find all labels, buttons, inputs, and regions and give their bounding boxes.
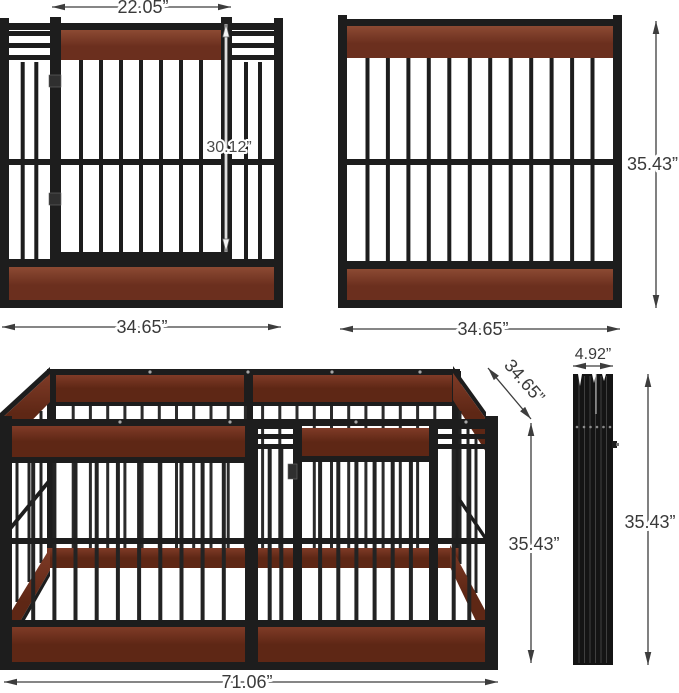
door-bars <box>79 60 203 252</box>
arrowhead <box>653 295 660 308</box>
folded-height-label: 35.43” <box>624 512 675 532</box>
folded-latch-tip <box>616 443 619 446</box>
door-width-label: 22.05” <box>117 0 168 17</box>
right-ladder-section <box>232 31 274 60</box>
bottom-frame-bar <box>0 662 498 670</box>
front-right-ladder <box>438 424 485 449</box>
arrowhead <box>600 363 613 370</box>
top-frame-bar <box>0 23 283 30</box>
bar <box>179 60 183 252</box>
bar <box>199 60 203 252</box>
door-panel-front-view <box>0 17 283 308</box>
arrowhead <box>653 21 660 34</box>
right-post <box>274 23 283 308</box>
door-hinge <box>49 75 61 87</box>
assembled-depth-label: 34.65” <box>500 355 549 407</box>
arrowhead <box>218 4 231 11</box>
bar <box>467 449 471 620</box>
bar <box>279 449 283 620</box>
back-wood-rail <box>253 375 452 402</box>
door-hinge <box>49 193 61 205</box>
arrowhead <box>52 4 65 11</box>
arrowhead <box>2 324 15 331</box>
bar <box>452 449 456 620</box>
arrowhead <box>573 363 586 370</box>
full-panel-front-view <box>338 15 622 308</box>
left-post <box>0 23 9 308</box>
full-panel-width-label: 34.65” <box>457 319 508 339</box>
arrowhead <box>4 679 17 686</box>
left-ladder-section <box>9 31 50 60</box>
bar <box>268 449 272 620</box>
arrowhead <box>528 423 535 436</box>
bottom-frame-bar <box>338 300 622 308</box>
full-panel-height-label: 35.43” <box>627 154 678 174</box>
bar <box>139 60 143 252</box>
bar <box>330 406 333 548</box>
assembled-height-label: 35.43” <box>508 534 559 554</box>
top-frame-bar <box>338 19 622 26</box>
front-face <box>0 416 498 670</box>
right-post <box>613 19 622 308</box>
mid-crossbar <box>347 159 613 165</box>
door-left-post <box>50 23 61 259</box>
arrowhead <box>340 326 353 333</box>
arrowhead <box>528 650 535 663</box>
bar <box>364 406 367 548</box>
front-wood-rail <box>12 426 245 457</box>
bottom-rail-frame <box>347 261 613 269</box>
arrowhead <box>485 679 498 686</box>
arrowhead <box>607 326 620 333</box>
front-left-ladder <box>258 424 293 449</box>
wood-top-rail <box>347 26 613 58</box>
door-height-label: 30.12” <box>206 139 251 156</box>
bar <box>119 60 123 252</box>
arrowhead <box>645 374 652 387</box>
bottom-wood-rail <box>347 269 613 300</box>
bottom-wood-rail <box>9 267 274 300</box>
bar <box>347 406 350 548</box>
bar <box>159 60 163 252</box>
back-wood-rail <box>56 375 244 402</box>
front-bottom-wood-rail <box>258 627 494 662</box>
assembled-playpen-3d-view <box>0 366 498 670</box>
folded-panel-view <box>573 374 619 665</box>
front-door-wood-rail <box>302 428 429 456</box>
assembled-length-label: 71.06” <box>221 672 272 692</box>
bar <box>382 406 385 548</box>
left-post <box>338 19 347 308</box>
front-door-left-post <box>293 419 302 627</box>
front-corner-post <box>0 416 12 670</box>
door-wood-top-rail <box>61 30 221 60</box>
bar <box>416 406 419 548</box>
bar <box>475 436 478 593</box>
arrowhead <box>645 652 652 665</box>
front-door-right-post <box>429 419 438 627</box>
mid-crossbar <box>9 159 274 165</box>
product-dimension-diagram: 22.05” 30.12” 34.65” 34.65” 35.43” 71.06… <box>0 0 679 693</box>
bottom-frame-bar <box>0 300 283 308</box>
door-bottom-bar <box>50 252 232 259</box>
bar <box>399 406 402 548</box>
dim-folded-width <box>573 363 613 370</box>
bar <box>79 60 83 252</box>
front-ladder-bars <box>268 449 284 620</box>
bar <box>99 60 103 252</box>
bottom-rail-frame <box>9 259 274 267</box>
folded-width-label: 4.92” <box>575 346 611 363</box>
bar <box>313 406 316 548</box>
front-corner-post <box>485 416 498 670</box>
front-door-latch <box>288 464 297 479</box>
arrowhead <box>268 324 281 331</box>
diagram-canvas: 22.05” 30.12” 34.65” 34.65” 35.43” 71.06… <box>0 0 679 693</box>
door-panel-width-label: 34.65” <box>116 317 167 337</box>
front-center-post <box>245 419 258 670</box>
front-bottom-wood-rail <box>4 627 245 662</box>
